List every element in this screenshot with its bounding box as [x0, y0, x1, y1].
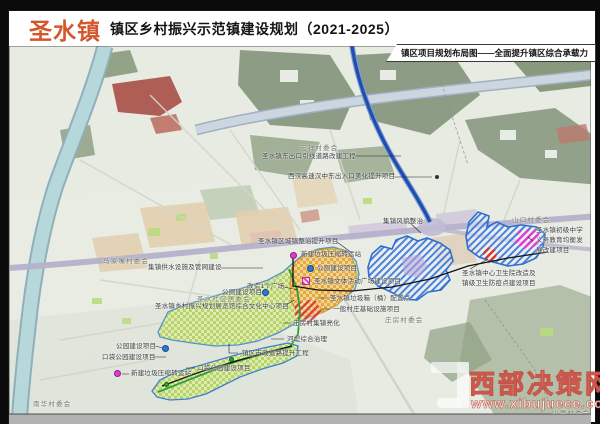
- town-name: 圣水镇: [29, 12, 101, 46]
- watermark-logo-icon: [431, 358, 473, 416]
- header: 圣水镇 镇区乡村振兴示范镇建设规划（2021-2025）: [9, 11, 595, 46]
- watermark: 西部决策网 www.xibujuece.com: [425, 350, 600, 424]
- plan-title: 镇区乡村振兴示范镇建设规划（2021-2025）: [110, 19, 399, 39]
- map-caption: 镇区项目规划布局图——全面提升镇区综合承载力: [386, 44, 596, 62]
- watermark-site-url: www.xibujuece.com: [471, 396, 600, 411]
